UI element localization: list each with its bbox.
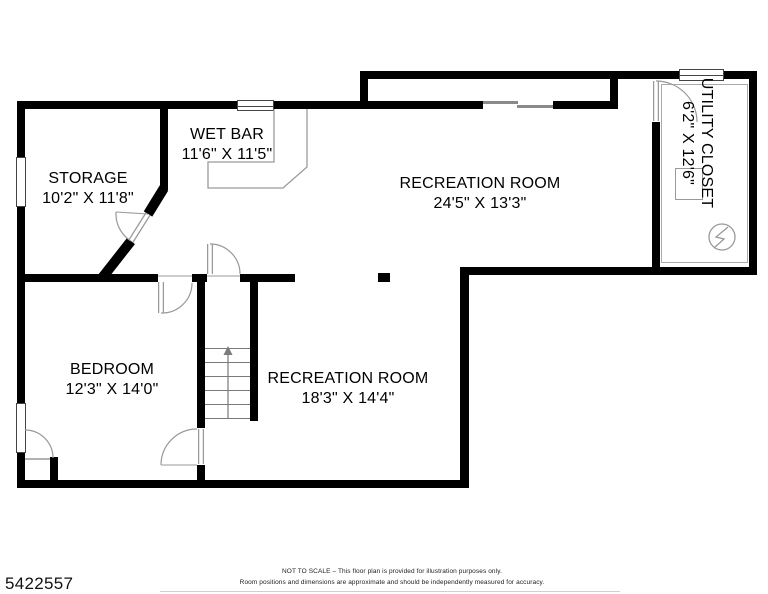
room-name: STORAGE — [18, 169, 158, 189]
room-label-storage: STORAGE 10'2" X 11'8" — [18, 169, 158, 209]
stair-tread — [205, 404, 250, 405]
wall — [273, 101, 368, 109]
wall — [17, 101, 238, 109]
window — [16, 403, 26, 453]
stair-tread — [205, 348, 250, 349]
bedroom-side-door — [161, 429, 201, 465]
plan-linework — [0, 0, 768, 594]
wall — [17, 274, 158, 282]
wall — [749, 71, 757, 275]
stair-tread — [205, 390, 250, 391]
wall — [652, 122, 660, 275]
room-dims: 10'2" X 11'8" — [18, 189, 158, 209]
door-recess — [25, 462, 50, 480]
stair-tread — [205, 362, 250, 363]
room-dims: 18'3" X 14'4" — [248, 389, 448, 409]
wall — [50, 457, 58, 488]
sliding-door-panel — [517, 105, 553, 108]
floor-plan: STORAGE 10'2" X 11'8" WET BAR 11'6" X 11… — [0, 0, 768, 594]
wall — [360, 79, 368, 109]
storage-door — [116, 212, 148, 241]
wall — [360, 71, 680, 79]
wall — [17, 101, 25, 157]
wall — [192, 274, 207, 282]
stairs-up-arrow — [224, 346, 233, 418]
room-label-utility-closet: UTILITY CLOSET 6'2" X 12'6" — [676, 76, 716, 210]
wall — [197, 282, 205, 428]
wall — [17, 480, 469, 488]
room-name: RECREATION ROOM — [380, 174, 580, 194]
room-label-bedroom: BEDROOM 12'3" X 14'0" — [32, 360, 192, 400]
room-label-recreation-lower: RECREATION ROOM 18'3" X 14'4" — [248, 369, 448, 409]
room-name: RECREATION ROOM — [248, 369, 448, 389]
post — [378, 273, 390, 282]
stair-tread — [205, 418, 250, 419]
stair-hall-door — [207, 244, 240, 276]
wall — [460, 267, 469, 488]
room-name: UTILITY CLOSET — [697, 76, 716, 210]
room-dims: 11'6" X 11'5" — [157, 145, 297, 165]
wall — [610, 79, 618, 109]
room-name: BEDROOM — [32, 360, 192, 380]
disclaimer-line1: NOT TO SCALE – This floor plan is provid… — [0, 567, 768, 578]
room-label-wet-bar: WET BAR 11'6" X 11'5" — [157, 125, 297, 165]
room-name: WET BAR — [157, 125, 297, 145]
sliding-door-panel — [483, 101, 518, 104]
wall — [368, 101, 483, 109]
window — [237, 100, 274, 111]
room-dims: 24'5" X 13'3" — [380, 194, 580, 214]
wall — [460, 267, 757, 275]
wall — [17, 453, 25, 488]
exterior-door — [25, 430, 53, 459]
room-label-recreation-upper: RECREATION ROOM 24'5" X 13'3" — [380, 174, 580, 214]
disclaimer: NOT TO SCALE – This floor plan is provid… — [0, 567, 768, 588]
bedroom-top-door — [158, 276, 192, 313]
disclaimer-line2: Room positions and dimensions are approx… — [0, 578, 768, 589]
wall — [17, 207, 25, 403]
wall — [240, 274, 295, 282]
cropped-text-line — [160, 591, 620, 592]
wall — [553, 101, 618, 109]
room-dims: 6'2" X 12'6" — [678, 76, 697, 210]
room-dims: 12'3" X 14'0" — [32, 380, 192, 400]
stair-tread — [205, 376, 250, 377]
wall — [197, 465, 205, 480]
